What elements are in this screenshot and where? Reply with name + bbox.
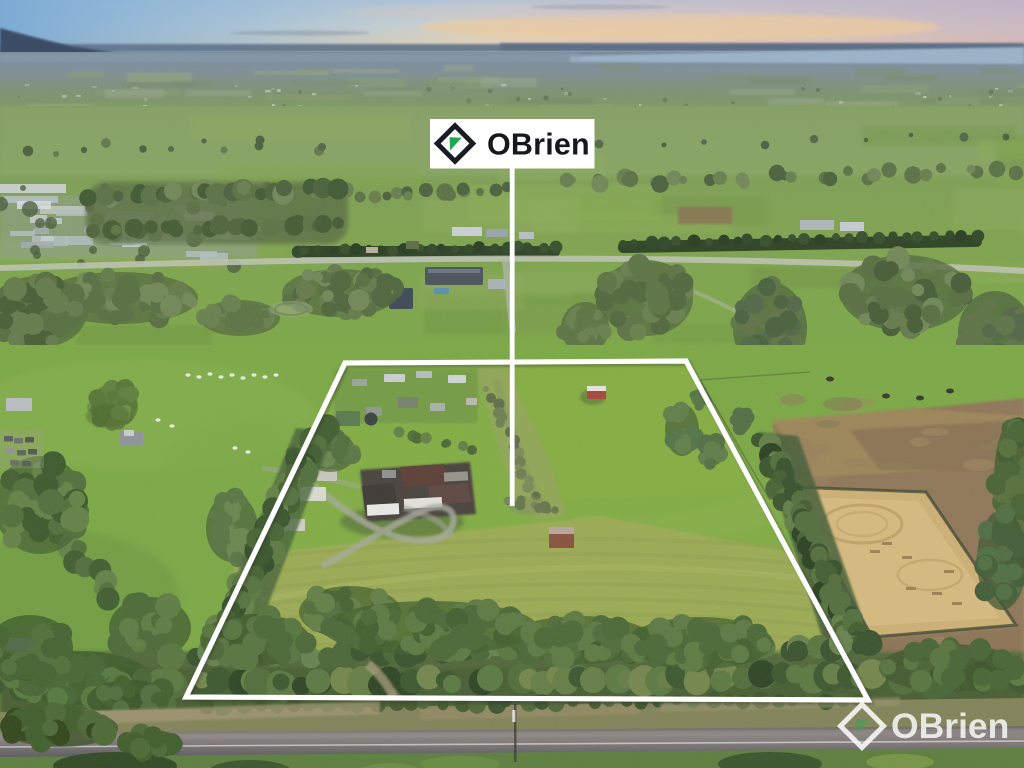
svg-text:OBrien: OBrien bbox=[891, 706, 1009, 746]
svg-text:OBrien: OBrien bbox=[487, 128, 590, 162]
